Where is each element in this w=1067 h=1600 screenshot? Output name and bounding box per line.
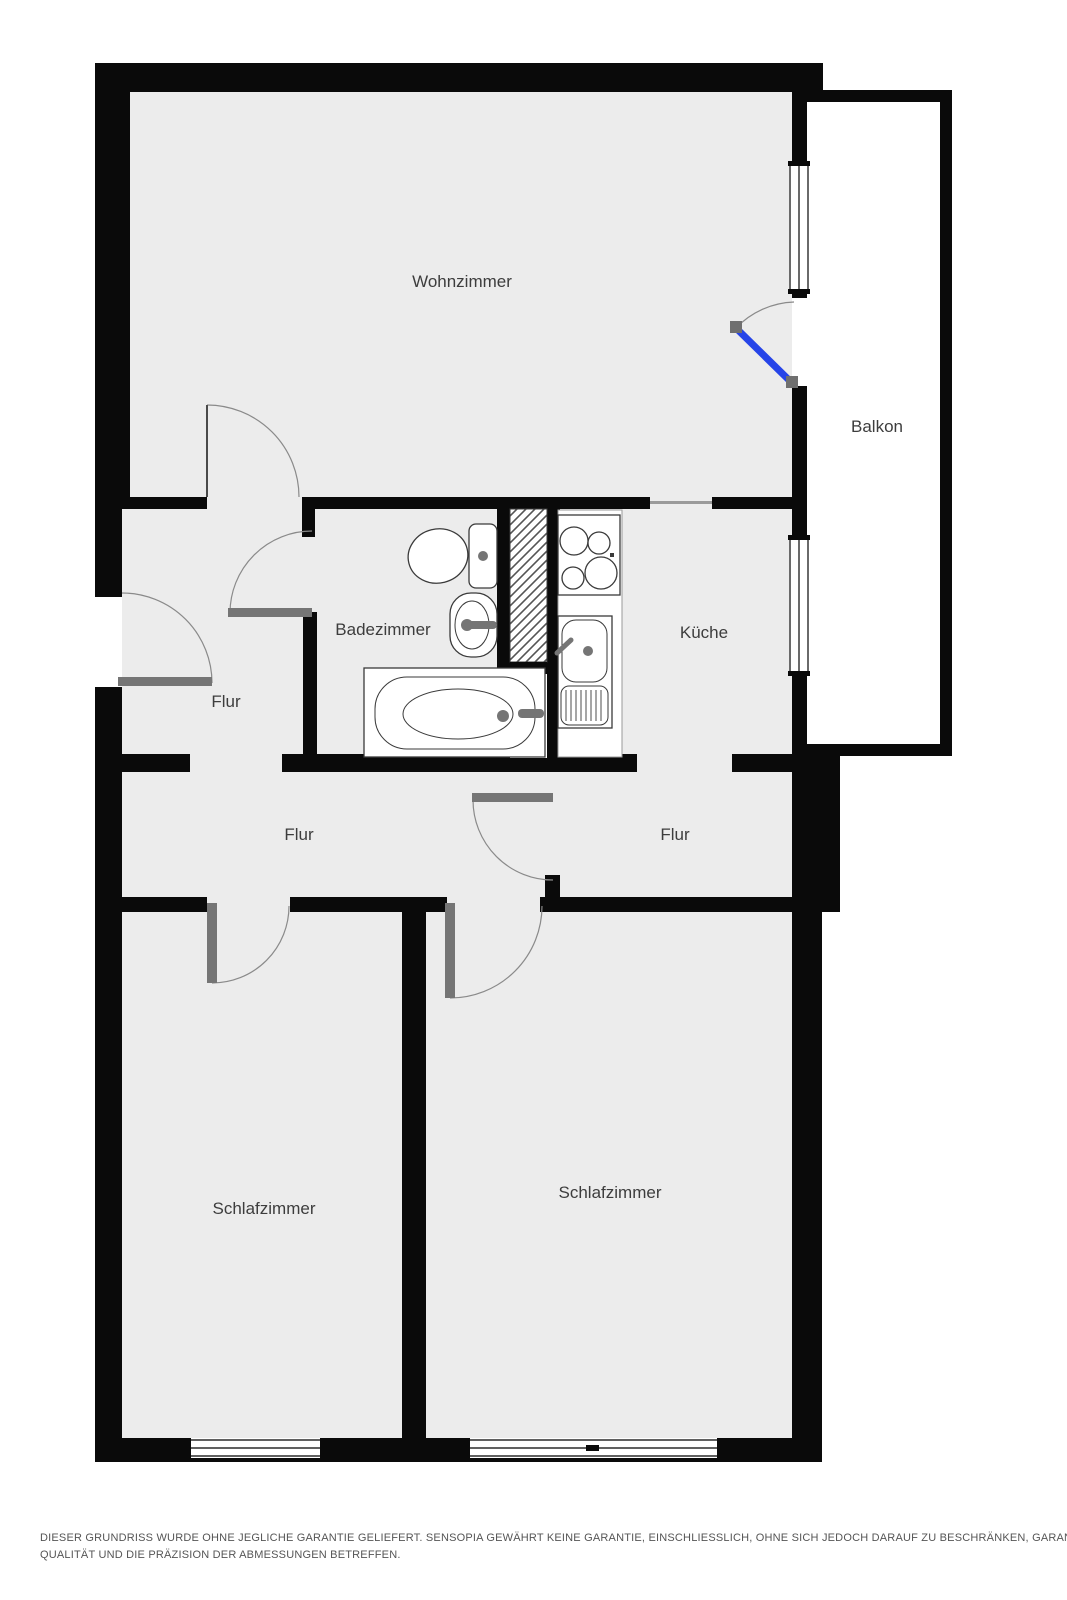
kitchen-top-opening-line	[650, 501, 712, 504]
wall-hall-bottom-3	[540, 897, 792, 912]
wall-right-4	[792, 675, 807, 756]
wall-top	[95, 63, 823, 92]
disclaimer-line-2: QUALITÄT UND DIE PRÄZISION DER ABMESSUNG…	[40, 1549, 401, 1561]
wall-mid-right	[732, 754, 792, 772]
wall-right-3	[792, 386, 807, 537]
wall-bathroom-left	[303, 612, 317, 758]
wall-hall-bottom-1	[122, 897, 207, 912]
balcony-wall-bottom	[807, 744, 952, 756]
label-schlafzimmer-left: Schlafzimmer	[213, 1199, 316, 1218]
wall-bedroom-divider	[402, 912, 426, 1438]
label-balkon: Balkon	[851, 417, 903, 436]
wall-right-1	[792, 92, 807, 163]
kitchen-sink-icon	[557, 616, 612, 728]
entrance-door-leaf	[118, 677, 212, 686]
label-flur-right: Flur	[660, 825, 690, 844]
wall-right-thick	[792, 756, 840, 912]
stove-icon	[558, 515, 620, 595]
balcony-door-opening	[792, 298, 807, 386]
kitchen-fixtures	[557, 510, 622, 757]
balcony-wall-top	[807, 90, 952, 102]
floorplan-page: Wohnzimmer Balkon Badezimmer Küche Flur …	[0, 0, 1067, 1600]
label-kueche: Küche	[680, 623, 728, 642]
wall-right-bedroom	[792, 912, 822, 1462]
window-bedroom-right-icon	[464, 1438, 723, 1458]
bathtub-icon	[364, 668, 545, 757]
window-kitchen-icon	[788, 535, 810, 676]
wall-hall-bottom-2	[290, 897, 447, 912]
bedroom-left-door-leaf	[207, 903, 217, 983]
window-living-icon	[788, 161, 810, 294]
wall-mid-left	[95, 754, 190, 772]
label-schlafzimmer-right: Schlafzimmer	[559, 1183, 662, 1202]
window-bedroom-left-icon	[185, 1438, 326, 1458]
hall-door-leaf	[472, 793, 553, 802]
wall-living-bottom-right	[302, 497, 545, 509]
wall-left-mid	[95, 509, 122, 597]
balcony-door-end-cap	[786, 376, 798, 388]
wall-stub-hall-door	[545, 875, 560, 899]
bedroom-right-door-leaf	[445, 903, 455, 998]
wall-kitchen-top-right	[712, 497, 792, 509]
balcony-wall-right	[940, 90, 952, 756]
bathroom-door-leaf	[228, 608, 312, 617]
entrance-opening	[95, 597, 122, 687]
label-flur-top: Flur	[211, 692, 241, 711]
balcony-door-hinge-cap	[730, 321, 742, 333]
wall-living-bottom-left	[122, 497, 207, 509]
shaft-hatch	[510, 509, 547, 662]
wall-left-upper	[95, 92, 130, 509]
floorplan-drawing: Wohnzimmer Balkon Badezimmer Küche Flur …	[0, 0, 1067, 1600]
wall-left-lower	[95, 687, 122, 1462]
label-flur-mid: Flur	[284, 825, 314, 844]
label-badezimmer: Badezimmer	[335, 620, 431, 639]
disclaimer-line-1: DIESER GRUNDRISS WURDE OHNE JEGLICHE GAR…	[40, 1532, 1067, 1544]
label-wohnzimmer: Wohnzimmer	[412, 272, 512, 291]
disclaimer: DIESER GRUNDRISS WURDE OHNE JEGLICHE GAR…	[40, 1532, 1067, 1561]
bathroom-sink-icon	[450, 593, 497, 657]
wall-kitchen-top-left	[545, 497, 650, 509]
